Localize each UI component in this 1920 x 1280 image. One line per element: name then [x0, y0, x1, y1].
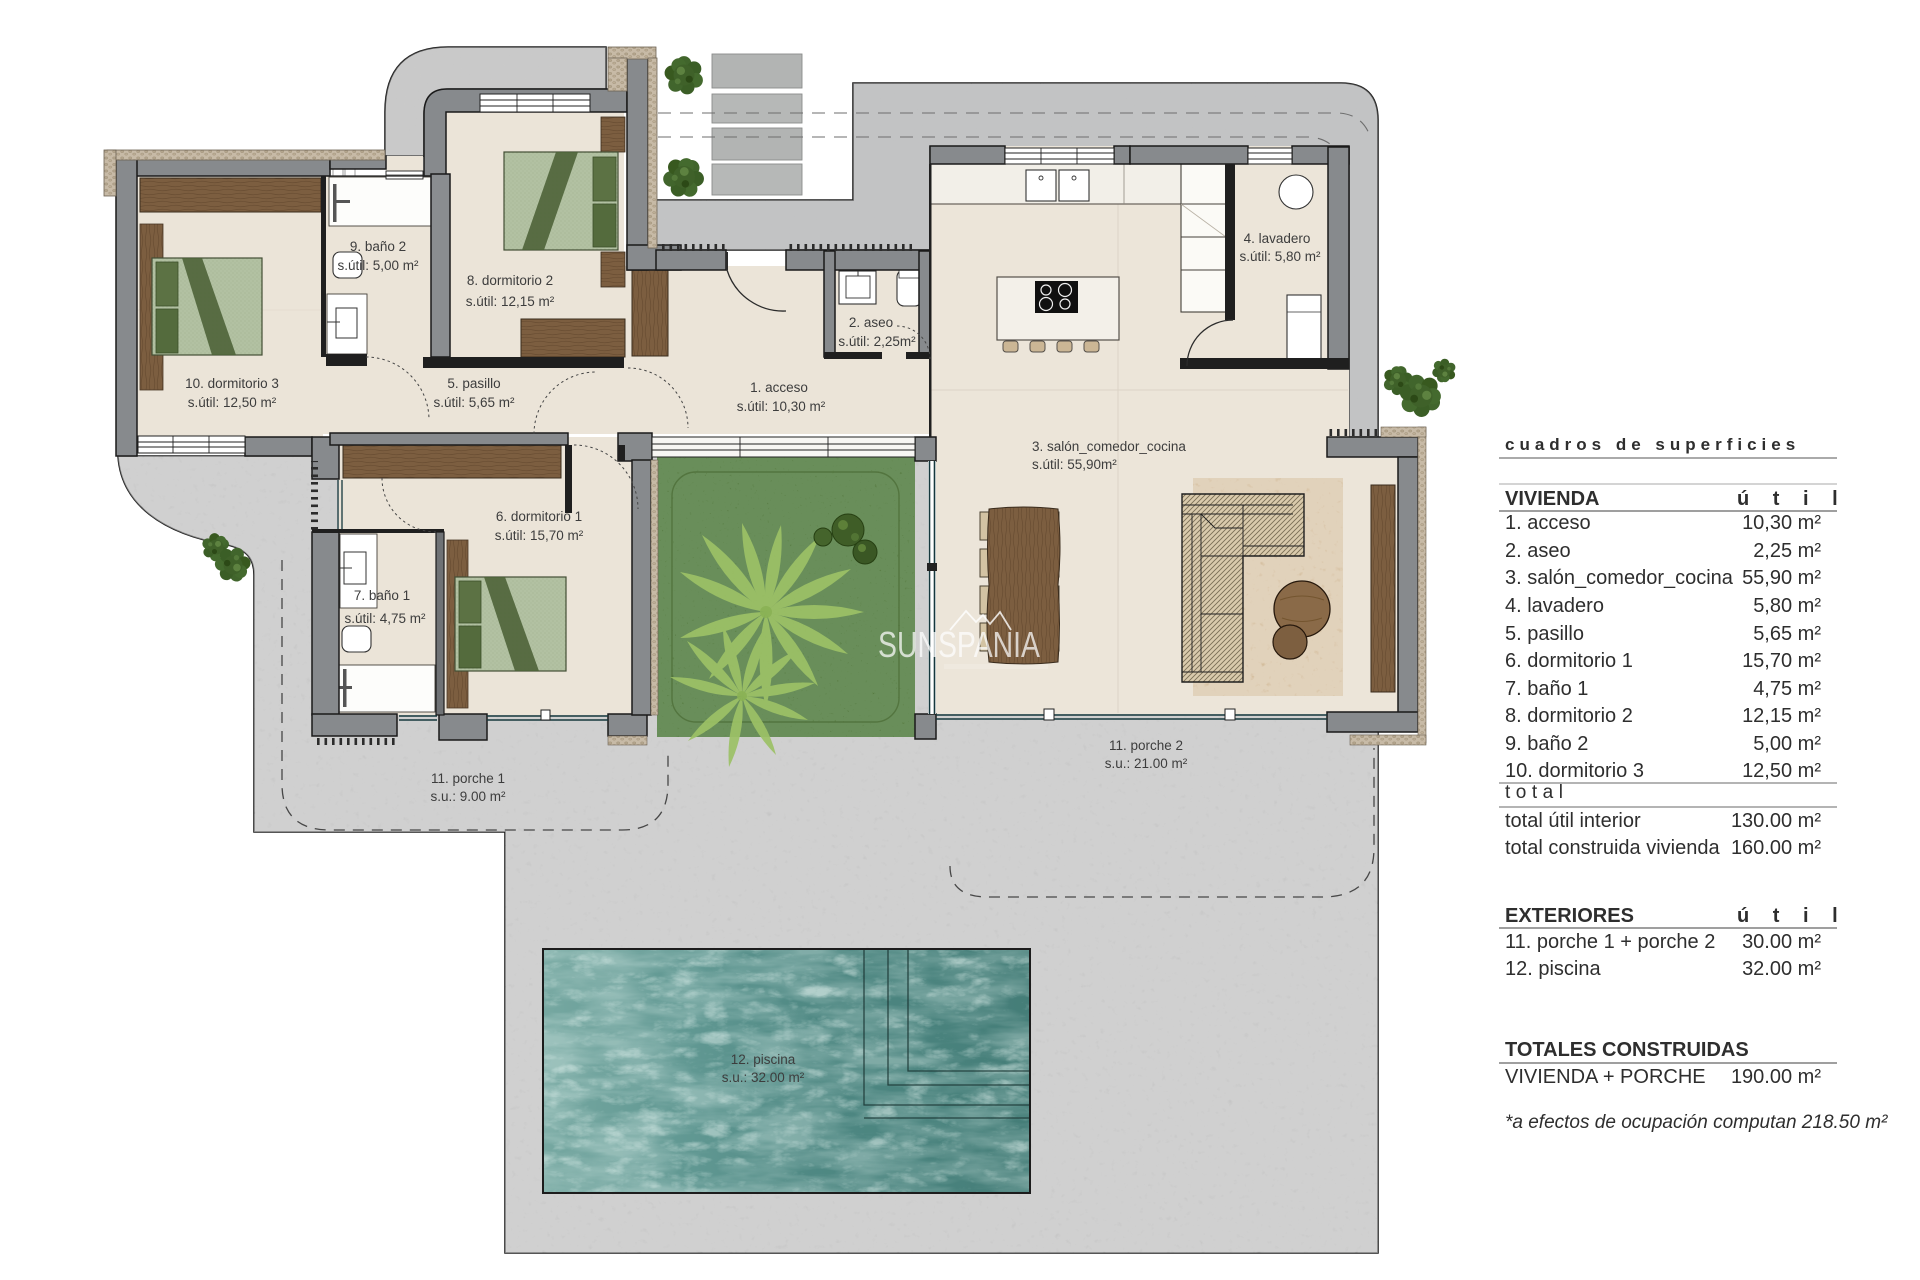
svg-text:11. porche 1 + porche 2: 11. porche 1 + porche 2 [1505, 931, 1715, 953]
svg-text:11. porche 2: 11. porche 2 [1109, 738, 1183, 753]
svg-text:9. baño 2: 9. baño 2 [350, 239, 406, 254]
svg-text:5. pasillo: 5. pasillo [1505, 623, 1584, 645]
svg-text:1. acceso: 1. acceso [1505, 512, 1591, 534]
svg-text:190.00 m²: 190.00 m² [1731, 1066, 1821, 1088]
svg-text:30.00 m²: 30.00 m² [1742, 931, 1821, 953]
svg-text:cuadros de superficies: cuadros de superficies [1505, 435, 1800, 454]
svg-text:10,30 m²: 10,30 m² [1742, 512, 1821, 534]
svg-text:12. piscina: 12. piscina [731, 1052, 796, 1067]
svg-text:8. dormitorio 2: 8. dormitorio 2 [1505, 705, 1633, 727]
svg-text:6. dormitorio 1: 6. dormitorio 1 [496, 509, 582, 524]
svg-text:1. acceso: 1. acceso [750, 380, 808, 395]
svg-text:ú t i l: ú t i l [1737, 905, 1847, 927]
svg-text:8. dormitorio 2: 8. dormitorio 2 [467, 273, 553, 288]
svg-text:s.útil: 55,90m²: s.útil: 55,90m² [1032, 457, 1117, 472]
svg-text:s.útil: 2,25m²: s.útil: 2,25m² [838, 334, 916, 349]
svg-text:160.00 m²: 160.00 m² [1731, 837, 1821, 859]
svg-text:VIVIENDA: VIVIENDA [1505, 488, 1599, 510]
svg-text:EXTERIORES: EXTERIORES [1505, 905, 1634, 927]
svg-text:130.00 m²: 130.00 m² [1731, 810, 1821, 832]
svg-text:2. aseo: 2. aseo [849, 315, 893, 330]
svg-text:total: total [1505, 782, 1568, 803]
svg-text:3. salón_comedor_cocina: 3. salón_comedor_cocina [1505, 567, 1734, 589]
svg-text:total construida vivienda: total construida vivienda [1505, 837, 1720, 859]
svg-text:s.útil: 5,00 m²: s.útil: 5,00 m² [337, 258, 419, 273]
svg-text:s.útil: 10,30 m²: s.útil: 10,30 m² [737, 399, 826, 414]
svg-text:10. dormitorio 3: 10. dormitorio 3 [1505, 760, 1644, 782]
svg-text:10. dormitorio 3: 10. dormitorio 3 [185, 376, 279, 391]
svg-text:ú t i l: ú t i l [1737, 488, 1847, 510]
svg-text:7. baño 1: 7. baño 1 [1505, 678, 1588, 700]
svg-text:2. aseo: 2. aseo [1505, 540, 1571, 562]
svg-text:s.útil: 12,15 m²: s.útil: 12,15 m² [466, 294, 555, 309]
svg-text:s.u.: 9.00 m²: s.u.: 9.00 m² [430, 789, 506, 804]
svg-text:5,00 m²: 5,00 m² [1753, 733, 1821, 755]
svg-text:TOTALES CONSTRUIDAS: TOTALES CONSTRUIDAS [1505, 1039, 1749, 1061]
svg-text:s.útil: 15,70 m²: s.útil: 15,70 m² [495, 528, 584, 543]
svg-text:total útil interior: total útil interior [1505, 810, 1641, 832]
svg-text:7. baño 1: 7. baño 1 [354, 588, 410, 603]
svg-text:5,65 m²: 5,65 m² [1753, 623, 1821, 645]
svg-text:12,15 m²: 12,15 m² [1742, 705, 1821, 727]
svg-text:4,75 m²: 4,75 m² [1753, 678, 1821, 700]
svg-text:s.útil: 4,75 m²: s.útil: 4,75 m² [344, 611, 426, 626]
svg-text:s.u.: 21.00 m²: s.u.: 21.00 m² [1105, 756, 1188, 771]
svg-text:12. piscina: 12. piscina [1505, 958, 1601, 980]
svg-text:s.útil: 5,65 m²: s.útil: 5,65 m² [433, 395, 515, 410]
svg-text:15,70 m²: 15,70 m² [1742, 650, 1821, 672]
svg-text:2,25 m²: 2,25 m² [1753, 540, 1821, 562]
svg-text:32.00 m²: 32.00 m² [1742, 958, 1821, 980]
svg-text:11. porche 1: 11. porche 1 [431, 771, 505, 786]
svg-text:12,50 m²: 12,50 m² [1742, 760, 1821, 782]
svg-text:55,90 m²: 55,90 m² [1742, 567, 1821, 589]
svg-text:9. baño 2: 9. baño 2 [1505, 733, 1588, 755]
svg-text:SUNSPANIA: SUNSPANIA [878, 624, 1040, 665]
svg-text:VIVIENDA + PORCHE: VIVIENDA + PORCHE [1505, 1066, 1706, 1088]
svg-text:*a efectos de ocupación comput: *a efectos de ocupación computan 218.50 … [1505, 1112, 1888, 1133]
svg-text:s.u.: 32.00 m²: s.u.: 32.00 m² [722, 1070, 805, 1085]
svg-text:3. salón_comedor_cocina: 3. salón_comedor_cocina [1032, 439, 1186, 454]
svg-text:6. dormitorio 1: 6. dormitorio 1 [1505, 650, 1633, 672]
svg-text:4. lavadero: 4. lavadero [1244, 231, 1311, 246]
svg-text:s.útil: 5,80 m²: s.útil: 5,80 m² [1239, 249, 1321, 264]
svg-text:4. lavadero: 4. lavadero [1505, 595, 1604, 617]
svg-text:s.útil: 12,50 m²: s.útil: 12,50 m² [188, 395, 277, 410]
svg-text:5,80 m²: 5,80 m² [1753, 595, 1821, 617]
svg-text:5. pasillo: 5. pasillo [447, 376, 500, 391]
